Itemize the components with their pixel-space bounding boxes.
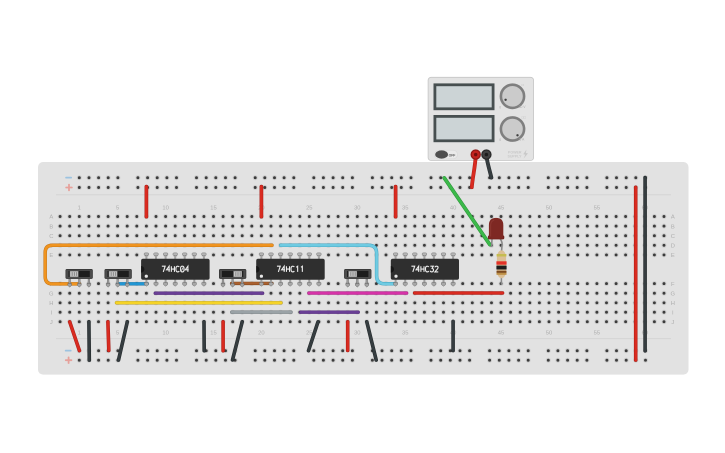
svg-text:50: 50 [546,205,552,211]
svg-text:□: □ [522,83,526,87]
svg-text:0: 0 [499,106,501,110]
svg-text:1: 1 [78,205,81,211]
svg-text:10: 10 [162,205,168,211]
svg-text:1: 1 [78,331,81,337]
svg-text:5: 5 [116,331,119,337]
svg-text:20: 20 [258,331,264,337]
svg-text:H: H [671,301,675,307]
svg-text:A: A [49,215,53,221]
svg-text:45: 45 [498,331,504,337]
svg-text:30: 30 [354,205,360,211]
svg-text:J: J [671,320,674,326]
svg-text:30 V: 30 V [519,105,527,109]
svg-text:H: H [49,301,53,307]
svg-text:A: A [671,215,675,221]
svg-text:C: C [671,234,675,240]
svg-text:55: 55 [594,331,600,337]
svg-text:G: G [49,291,54,297]
svg-text:SUPPLY: SUPPLY [507,155,522,159]
svg-text:50: 50 [546,331,552,337]
svg-text:35: 35 [402,205,408,211]
svg-text:0: 0 [499,138,501,142]
svg-text:OFF: OFF [449,153,456,157]
svg-text:25: 25 [306,205,312,211]
svg-text:E: E [49,253,53,259]
svg-text:55: 55 [594,205,600,211]
svg-text:F: F [671,282,675,288]
svg-text:35: 35 [402,331,408,337]
svg-text:10: 10 [162,331,168,337]
svg-text:45: 45 [498,205,504,211]
svg-text:□□: □□ [522,115,526,119]
svg-text:J: J [50,320,53,326]
svg-text:C: C [49,234,53,240]
svg-text:B: B [671,224,675,230]
svg-text:D: D [671,244,675,250]
svg-text:5 A: 5 A [519,137,525,141]
svg-text:G: G [671,291,676,297]
svg-text:15: 15 [210,331,216,337]
svg-text:E: E [671,253,675,259]
svg-text:B: B [49,224,53,230]
svg-text:15: 15 [210,205,216,211]
svg-text:40: 40 [450,205,456,211]
svg-text:5: 5 [116,205,119,211]
svg-text:30: 30 [354,331,360,337]
